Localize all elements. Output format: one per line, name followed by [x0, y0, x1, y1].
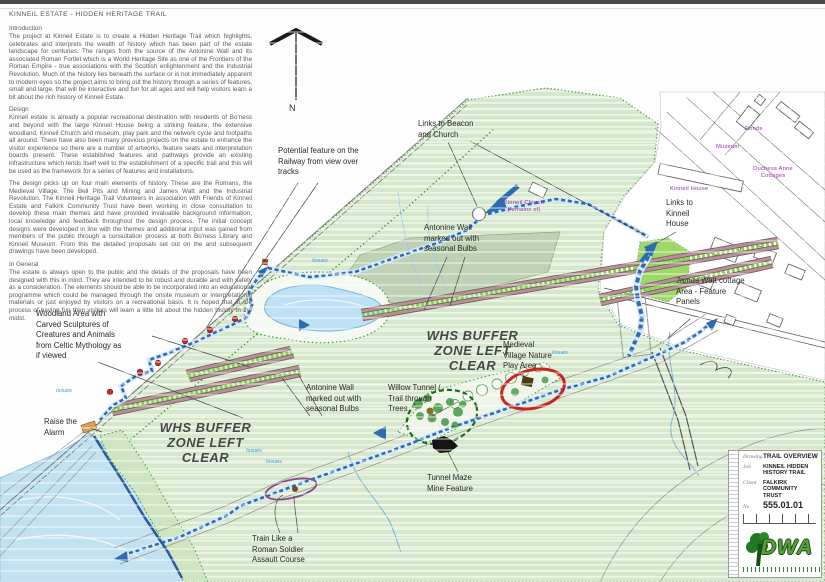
map-label-museum: Museum [716, 144, 739, 151]
map-label-issues-2: Issues [56, 388, 72, 394]
dwa-logo-text: DWA [761, 536, 813, 560]
annotation-tunnel-maze: Tunnel Maze Mine Feature [427, 473, 509, 494]
north-label: N [289, 103, 296, 113]
church-link-node [473, 208, 486, 221]
annotation-antonine-wall-lower: Antonine Wall marked out with seasonal B… [306, 383, 396, 415]
map-label-ponds: Ponds [745, 126, 762, 133]
scale-bar [743, 514, 816, 524]
map-label-kinneil-house: Kinneil House [670, 186, 708, 193]
drawing-number: 555.01.01 [763, 502, 803, 509]
annotation-links-kinneil-house: Links to Kinneil House [666, 198, 721, 230]
annotation-potential-feature: Potential feature on the Railway from vi… [278, 146, 390, 178]
assault-course-dot [292, 486, 298, 492]
map-label-issues-5: Issues [552, 350, 568, 356]
whs-buffer-zone-label-west: WHS BUFFER ZONE LEFT CLEAR [148, 420, 263, 465]
title-block-drawing-value: TRAIL OVERVIEW [763, 454, 818, 461]
annotation-antonine-wall-upper: Antonine Wall marked out with seasonal B… [424, 223, 519, 255]
design-body-1: Kinneil estate is already a popular recr… [9, 114, 252, 175]
map-label-issues-3: Issues [246, 448, 262, 454]
title-block-number-label: No [743, 504, 760, 510]
general-heading: In General [9, 261, 252, 268]
annotation-raise-alarm: Raise the Alarm [44, 417, 96, 438]
title-block-drawing-label: Drawing [743, 454, 760, 460]
intro-heading: Introduction [9, 25, 252, 32]
design-body-2: The design picks up on four main element… [9, 180, 252, 256]
map-label-issues-4: Issues [266, 459, 282, 465]
title-block-job-value: KINNEIL HIDDEN HISTORY TRAIL [763, 464, 808, 477]
drawing-sheet: KINNEIL ESTATE - HIDDEN HERITAGE TRAIL I… [0, 0, 825, 582]
title-block-client-label: Client [743, 480, 760, 486]
annotation-links-beacon: Links to Beacon and Church [418, 119, 508, 140]
title-block-ruler [729, 451, 739, 577]
intro-body: The project at Kinneil Estate is to crea… [9, 33, 252, 101]
whs-buffer-zone-label-east: WHS BUFFER ZONE LEFT CLEAR [410, 328, 535, 373]
annotation-woodland-sculptures: Woodland Area with Carved Sculptures of … [36, 309, 161, 362]
map-label-kinneil-church: Kinneil Church (remains of) [493, 200, 555, 214]
title-block: Drawing TRAIL OVERVIEW Job KINNEIL HIDDE… [728, 450, 822, 578]
annotation-willow-tunnel: Willow Tunnel / Trail through Trees [388, 383, 470, 415]
map-label-duchess-anne: Duchess Anne Cottages [744, 166, 802, 180]
north-arrow-icon [270, 30, 322, 100]
design-heading: Design [9, 106, 252, 113]
dwa-logo: DWA [743, 528, 818, 572]
page-title: KINNEIL ESTATE - HIDDEN HERITAGE TRAIL [9, 11, 252, 18]
logo-grass-strip [743, 567, 821, 572]
title-block-job-label: Job [743, 464, 760, 470]
map-label-issues-1: Issues [312, 258, 328, 264]
title-block-client-value: FALKIRK COMMUNITY TRUST [763, 480, 818, 500]
annotation-james-watt: James Watt cottage Area - Feature Panels [676, 276, 776, 308]
annotation-train-roman: Train Like a Roman Soldier Assault Cours… [252, 534, 330, 566]
report-text: KINNEIL ESTATE - HIDDEN HERITAGE TRAIL I… [9, 11, 252, 322]
